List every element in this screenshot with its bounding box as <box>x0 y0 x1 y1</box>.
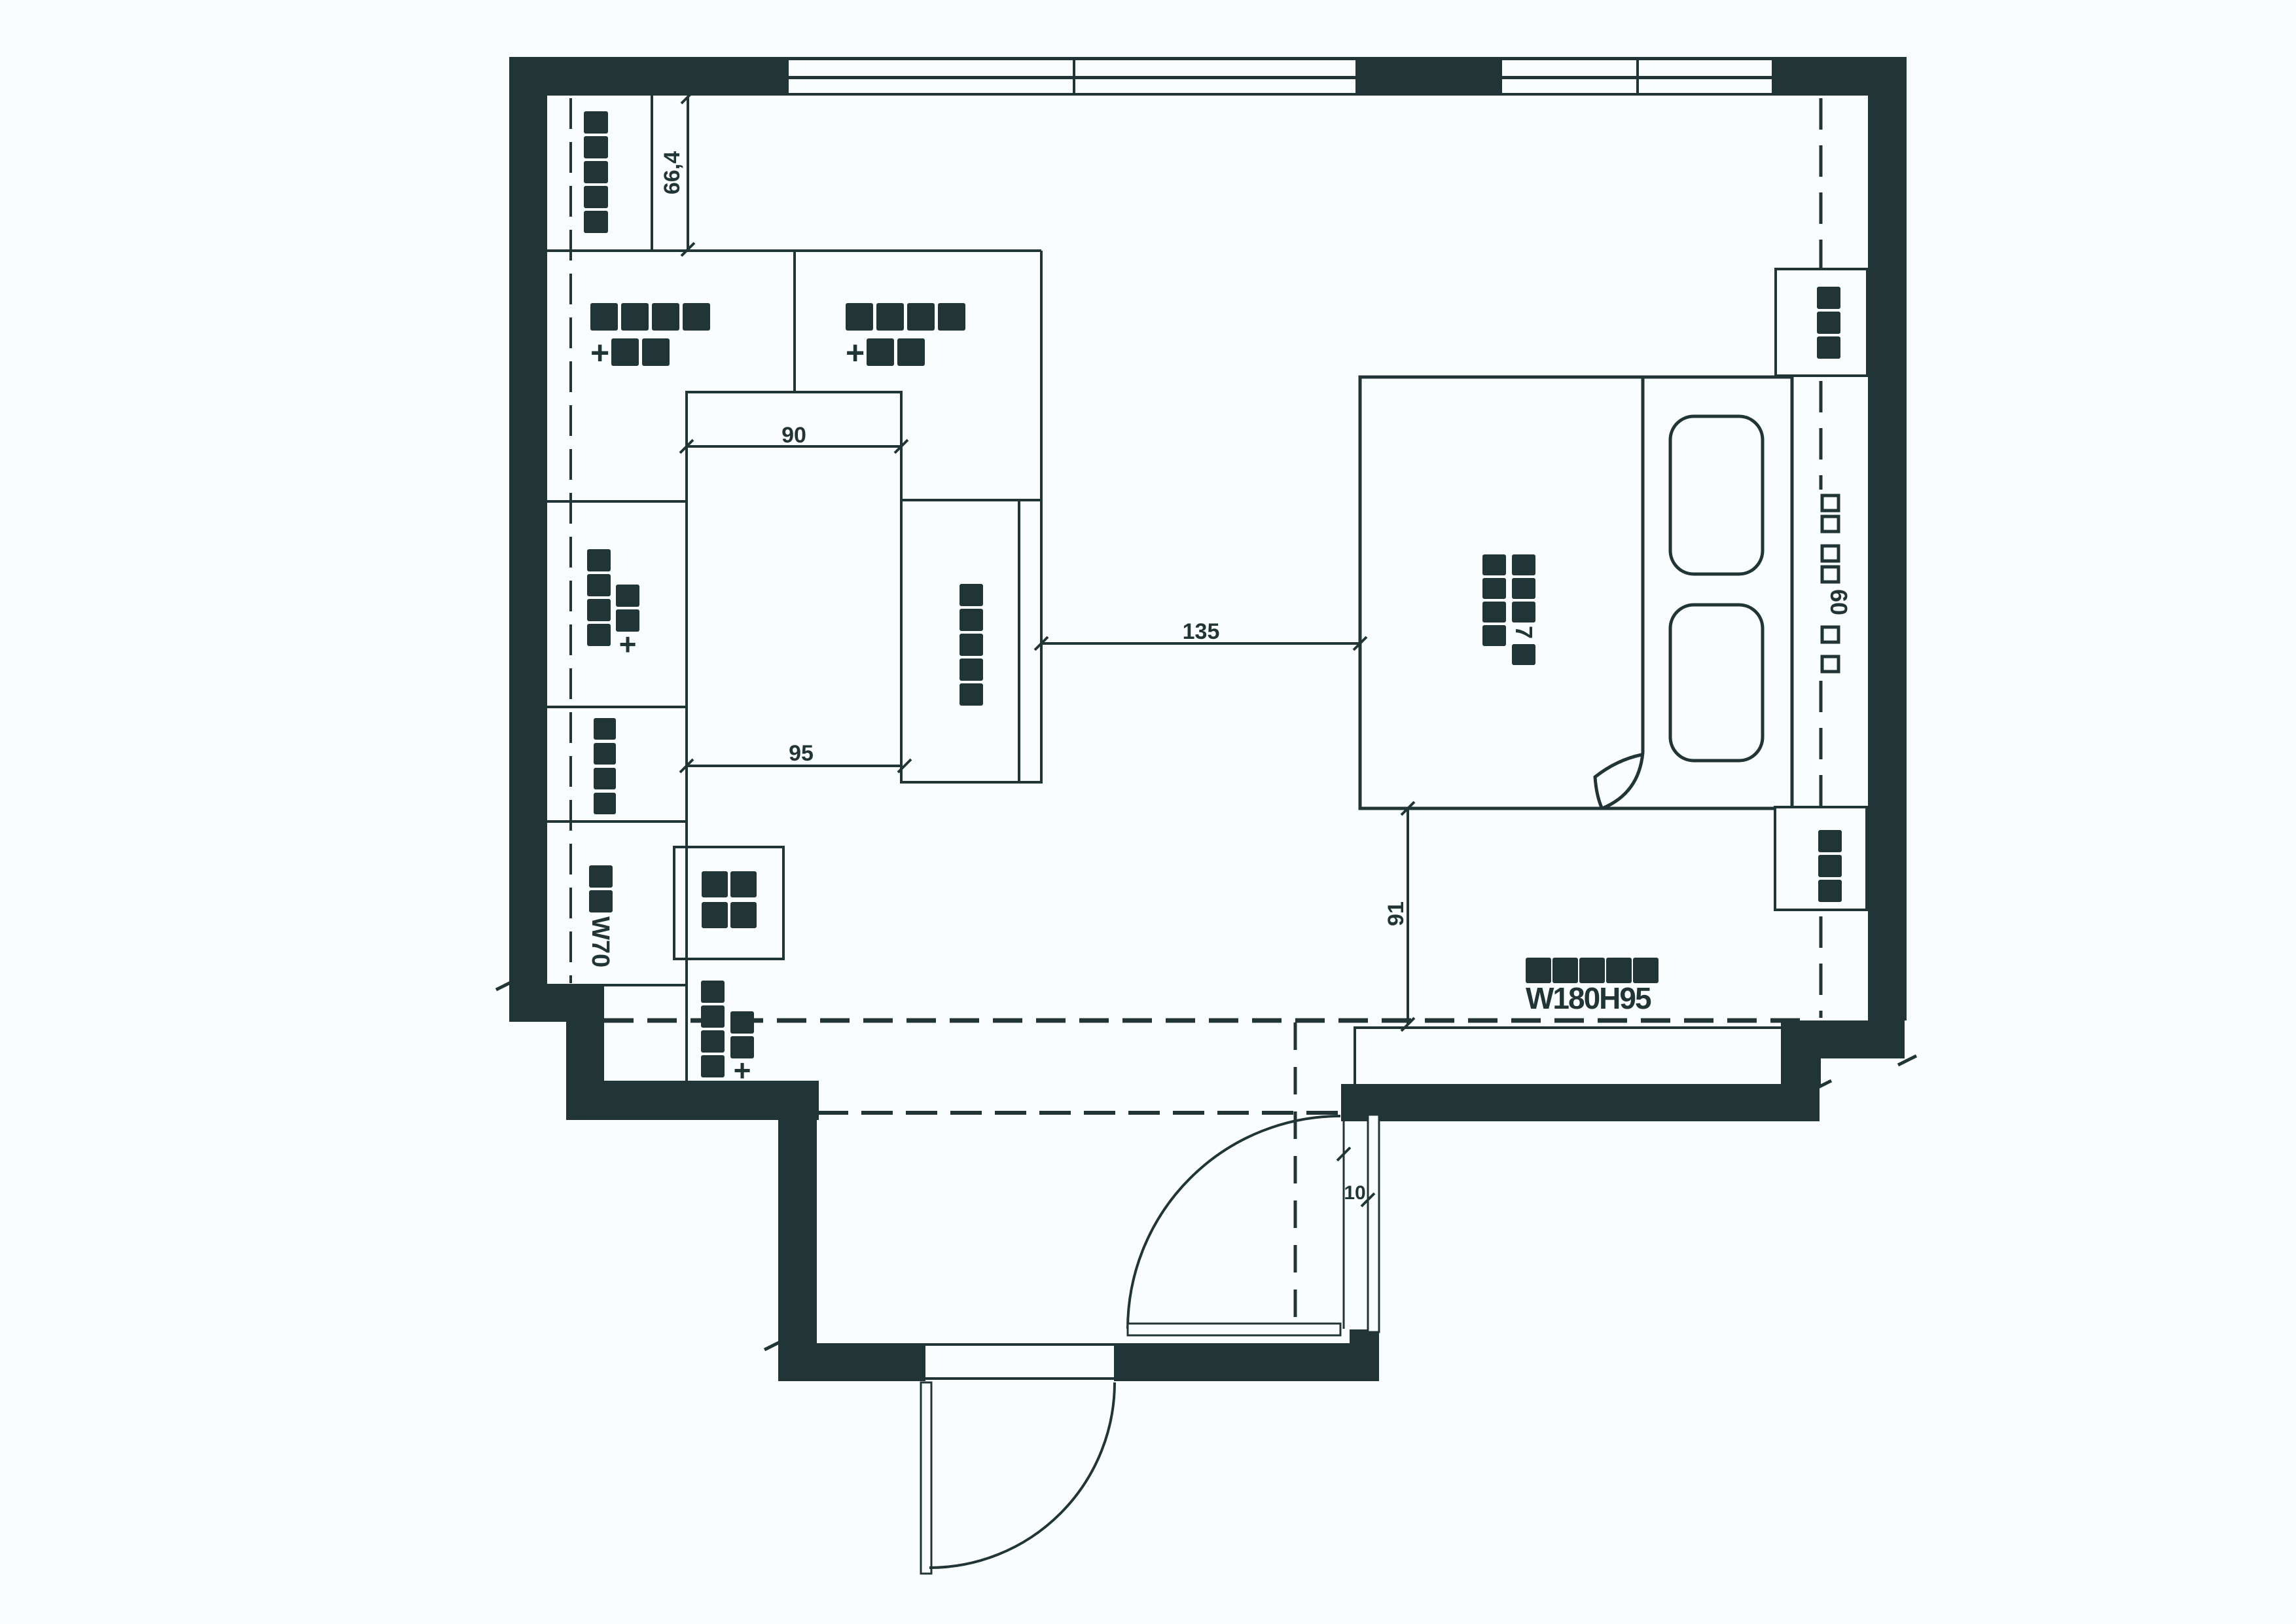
svg-text:60: 60 <box>1825 589 1852 615</box>
svg-text:95: 95 <box>789 741 814 766</box>
svg-text:7: 7 <box>1511 626 1537 639</box>
svg-text:+: + <box>846 334 865 371</box>
svg-text:W70: W70 <box>586 916 614 967</box>
svg-text:66,4: 66,4 <box>660 151 685 194</box>
svg-text:135: 135 <box>1183 619 1220 644</box>
svg-text:W180H95: W180H95 <box>1526 981 1651 1015</box>
svg-text:+: + <box>619 627 637 661</box>
svg-text:90: 90 <box>781 423 806 448</box>
svg-text:10: 10 <box>1344 1182 1365 1204</box>
svg-text:91: 91 <box>1384 901 1408 926</box>
svg-text:+: + <box>590 334 609 371</box>
